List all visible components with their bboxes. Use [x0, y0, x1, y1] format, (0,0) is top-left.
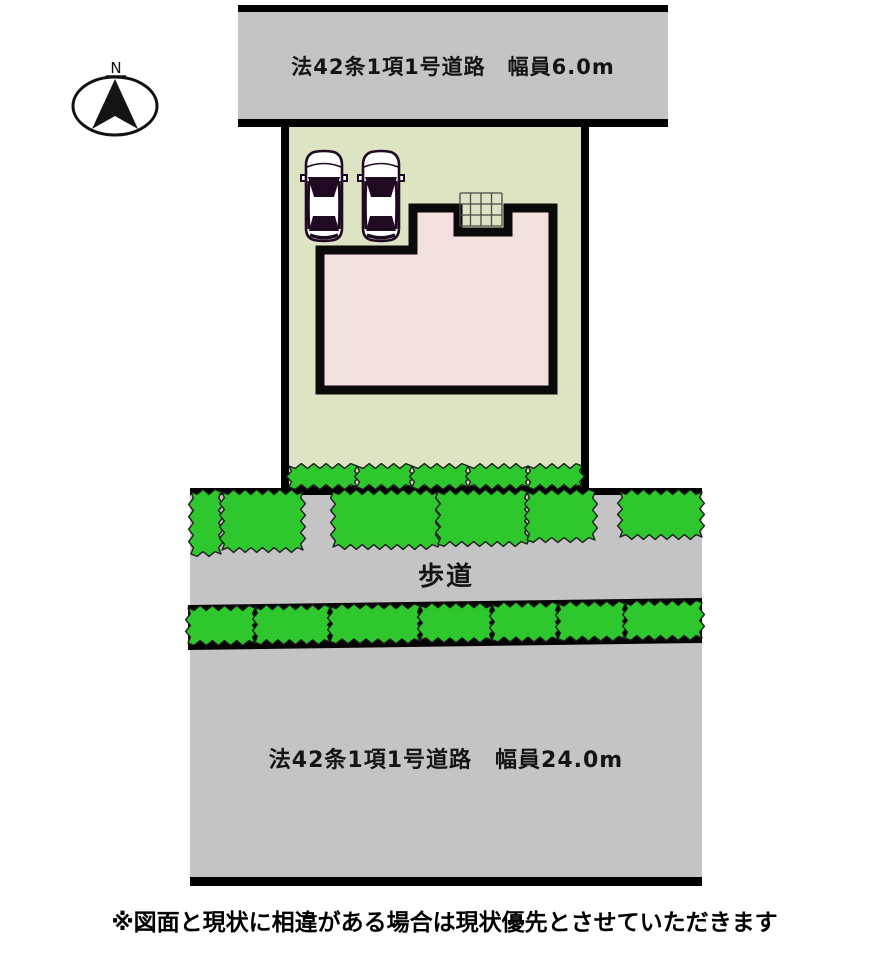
sidewalk [190, 488, 702, 612]
top-road-label: 法42条1項1号道路 幅員6.0m [291, 51, 615, 81]
sidewalk-label: 歩道 [190, 556, 702, 593]
bottom-road-label: 法42条1項1号道路 幅員24.0m [190, 742, 702, 774]
site-plan: 法42条1項1号道路 幅員6.0m N 歩道 法42条1項1号道路 幅員24.0… [0, 0, 889, 960]
top-road: 法42条1項1号道路 幅員6.0m [238, 5, 668, 127]
north-compass: N [73, 59, 157, 135]
north-label: N [110, 59, 121, 77]
site-lot [281, 127, 589, 494]
disclaimer-text: ※図面と現状に相違がある場合は現状優先とさせていただきます [0, 903, 889, 937]
north-arrow-icon [92, 79, 138, 129]
compass-circle [73, 77, 157, 135]
